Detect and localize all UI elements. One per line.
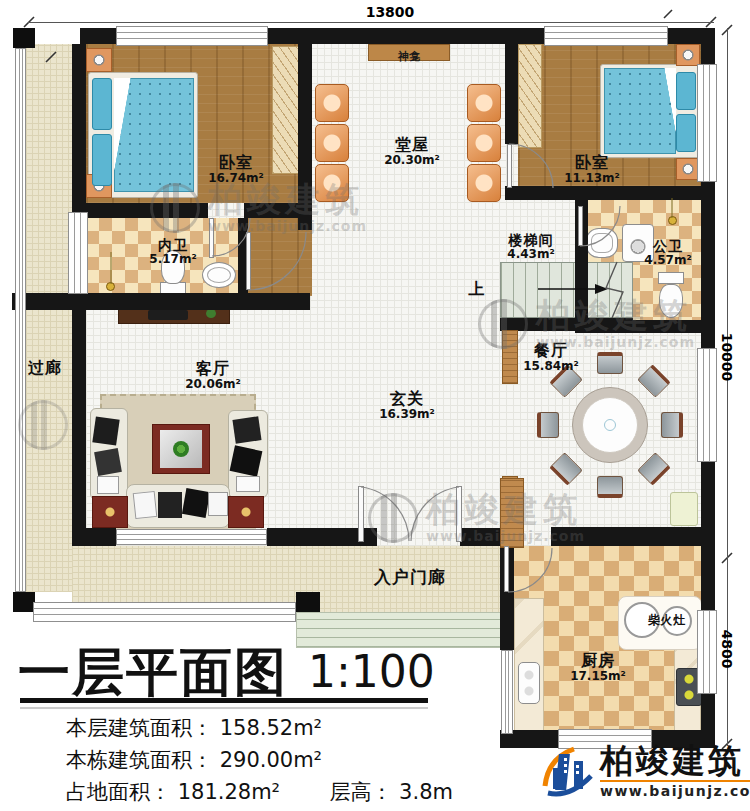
window — [697, 348, 717, 462]
room-name: 卧室 — [564, 154, 620, 172]
end-table — [92, 496, 128, 528]
kitchen-sink — [518, 662, 540, 704]
cushion — [182, 488, 210, 518]
window — [697, 610, 717, 694]
room-name: 柴火灶 — [648, 614, 687, 628]
column — [13, 592, 35, 612]
room-area: 17.15m² — [570, 670, 626, 684]
room-label-hall: 堂屋 20.30m² — [384, 136, 440, 168]
room-name: 公卫 — [644, 238, 691, 254]
door-leaf — [209, 218, 214, 258]
dimension-right-lower: 4800 — [719, 619, 735, 679]
stat-value: 158.52m² — [220, 716, 322, 740]
partition-screen — [502, 330, 518, 384]
room-label-dining: 餐厅 15.84m² — [523, 342, 579, 374]
dining-chair — [597, 476, 623, 498]
room-label-bedroom-right: 卧室 11.13m² — [564, 154, 620, 186]
door-leaf — [246, 232, 251, 290]
cushion — [133, 491, 158, 519]
wall — [500, 318, 633, 331]
room-area: 20.30m² — [384, 154, 440, 168]
wall — [551, 527, 701, 546]
room-name: 上 — [469, 280, 486, 298]
room-name: 入户门廊 — [374, 568, 446, 588]
room-label-bath-inner: 内卫 5.17m² — [149, 237, 196, 267]
brand-url: www.baijunjz.com — [600, 780, 750, 799]
porch-pillar — [500, 478, 524, 548]
appliance — [670, 492, 698, 526]
hall-chair — [315, 124, 349, 162]
bed-left-sheet — [114, 78, 148, 192]
dining-chair — [537, 412, 559, 438]
room-name: 厨房 — [570, 652, 626, 670]
room-label-living: 客厅 20.06m² — [185, 360, 241, 392]
window — [15, 48, 26, 592]
stat-value: 181.28m² — [178, 780, 280, 804]
window — [697, 64, 717, 182]
stat-floor-area: 本层建筑面积： 158.52m² — [66, 714, 322, 742]
drawing-scale: 1:100 — [308, 646, 435, 697]
hall-chair — [467, 84, 501, 122]
floor-corridor — [26, 44, 72, 592]
bed-right-sheet — [646, 68, 676, 154]
toilet-tank — [658, 272, 684, 284]
porch-steps-right — [296, 612, 502, 648]
door-leaf — [578, 206, 583, 246]
room-label-bath-public: 公卫 4.57m² — [644, 238, 691, 268]
brand-logo: 柏竣建筑 www.baijunjz.com — [540, 744, 750, 799]
cushion — [97, 476, 119, 494]
dimension-right-upper: 10000 — [719, 327, 735, 387]
stat-value: 290.00m² — [220, 748, 322, 772]
room-name: 玄关 — [379, 390, 435, 408]
hall-chair — [315, 164, 349, 202]
shrine-shelf: 神龛 — [368, 44, 450, 61]
room-name: 内卫 — [149, 237, 196, 253]
room-name: 过廊 — [28, 359, 62, 377]
dining-chair — [661, 412, 683, 438]
wall — [460, 528, 502, 546]
dining-chair — [597, 352, 623, 374]
stat-label: 本栋建筑面积： — [66, 748, 213, 772]
stat-label: 占地面积： — [66, 780, 171, 804]
window — [68, 212, 88, 294]
column — [296, 592, 320, 612]
cushion — [158, 492, 182, 518]
hall-chair — [467, 124, 501, 162]
bed-right-pillow — [676, 72, 696, 110]
door-leaf — [358, 486, 364, 542]
room-area: 15.84m² — [523, 360, 579, 374]
cushion — [208, 492, 228, 516]
stat-value: 3.8m — [399, 780, 453, 804]
wall — [505, 186, 715, 200]
cushion — [92, 416, 119, 445]
room-label-corridor: 过廊 — [28, 359, 62, 377]
title-underline-light — [20, 707, 428, 709]
room-name: 餐厅 — [523, 342, 579, 360]
brand-name: 柏竣建筑 — [600, 744, 750, 779]
stat-land-area: 占地面积： 181.28m² 层高： 3.8m — [66, 778, 453, 806]
room-area: 20.06m² — [185, 378, 241, 392]
toilet — [659, 284, 683, 318]
dining-table-center — [604, 419, 616, 431]
hall-chair — [315, 84, 349, 122]
stairs-up-label: 上 — [469, 280, 486, 298]
stairs — [500, 262, 633, 318]
dimension-line-top — [28, 22, 714, 23]
lamp-pull — [668, 216, 677, 225]
room-label-wood-stove: 柴火灶 — [648, 614, 687, 628]
stat-building-area: 本栋建筑面积： 290.00m² — [66, 746, 322, 774]
floor-plan-canvas: 神龛 — [0, 0, 750, 811]
room-label-foyer: 玄关 16.39m² — [379, 390, 435, 422]
sink — [586, 228, 618, 258]
wardrobe-left — [272, 46, 300, 174]
wardrobe-right — [518, 44, 542, 148]
dimension-top: 13800 — [360, 4, 420, 20]
cushion — [236, 476, 260, 492]
room-label-kitchen: 厨房 17.15m² — [570, 652, 626, 684]
bed-left-pillow — [92, 78, 112, 130]
wall — [505, 44, 518, 144]
cushion — [230, 445, 263, 476]
room-label-porch: 入户门廊 — [374, 568, 446, 588]
room-name: 楼梯间 — [507, 232, 554, 248]
room-area: 4.43m² — [507, 248, 554, 262]
sink — [202, 262, 236, 288]
wall — [72, 528, 116, 546]
porch-steps-left — [33, 602, 296, 622]
room-area: 4.57m² — [644, 254, 691, 268]
door-leaf — [456, 486, 462, 542]
room-area: 16.39m² — [379, 408, 435, 422]
bed-right-pillow — [676, 114, 696, 152]
room-name: 客厅 — [185, 360, 241, 378]
room-area: 5.17m² — [149, 253, 196, 267]
hall-chair — [467, 164, 501, 202]
column — [13, 28, 35, 48]
stat-label: 本层建筑面积： — [66, 716, 213, 740]
bed-left-pillow — [92, 134, 112, 186]
plant — [206, 309, 216, 318]
nightstand — [86, 48, 112, 72]
wall — [86, 203, 208, 218]
brand-logo-icon — [540, 744, 594, 798]
room-label-bedroom-left: 卧室 16.74m² — [208, 154, 264, 186]
window — [501, 650, 513, 734]
room-name: 卧室 — [208, 154, 264, 172]
room-name: 堂屋 — [384, 136, 440, 154]
window — [544, 26, 668, 46]
stat-label: 层高： — [329, 780, 392, 804]
nightstand — [676, 44, 700, 66]
title-underline — [20, 698, 428, 703]
window — [116, 26, 268, 46]
end-table — [228, 496, 264, 528]
plant — [173, 441, 189, 457]
window — [116, 529, 267, 545]
room-name-shrine: 神龛 — [398, 50, 420, 63]
cushion — [232, 416, 261, 443]
lamp-pull — [106, 282, 115, 291]
room-label-stairwell: 楼梯间 4.43m² — [507, 232, 554, 262]
cushion — [94, 448, 122, 476]
room-area: 11.13m² — [564, 172, 620, 186]
tv — [148, 310, 188, 320]
wall — [244, 203, 312, 218]
door-leaf — [507, 144, 512, 188]
wall — [12, 293, 310, 310]
door-leaf — [504, 546, 509, 592]
room-area: 16.74m² — [208, 172, 264, 186]
